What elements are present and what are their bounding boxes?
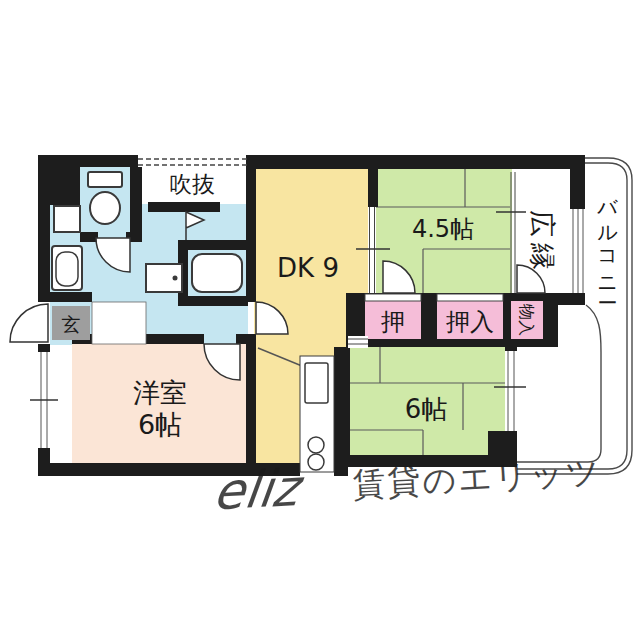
monoire-label: 物入 (517, 303, 536, 336)
balcony-label: バルコニー (596, 185, 620, 304)
watermark-logo: eliz (210, 458, 307, 522)
corner-sink (54, 206, 80, 232)
jp6-window (505, 351, 517, 431)
genkan-label: 玄 (62, 313, 81, 335)
dk-jp6-opening (348, 336, 368, 348)
yoshitsu-label-line1: 洋室 (133, 377, 187, 408)
fukinuke-label: 吹抜 (169, 171, 215, 197)
hiroen-label: 広縁 (527, 210, 558, 276)
toilet-bowl (90, 192, 120, 224)
floorplan-page: 吹抜 DK 9 4.5帖 広縁 バルコニー 押 押入 物入 6帖 洋室 6帖 玄… (0, 0, 640, 640)
toilet-tank (88, 172, 122, 187)
washing-machine (56, 252, 78, 286)
floorplan-svg: 吹抜 DK 9 4.5帖 広縁 バルコニー 押 押入 物入 6帖 洋室 6帖 玄… (0, 0, 640, 640)
oshiire-fusuma (437, 294, 503, 301)
jp6-label: 6帖 (405, 394, 448, 424)
entrance-door (10, 304, 48, 342)
bathtub (192, 254, 242, 292)
kitchen-sink (305, 363, 328, 403)
dk-label: DK 9 (277, 253, 339, 283)
yoshitsu-label-line2: 6帖 (138, 409, 182, 440)
jp45-label: 4.5帖 (412, 215, 474, 243)
oshiire-label: 押入 (446, 308, 494, 336)
entrance-step (92, 302, 146, 344)
oshi-label: 押 (381, 308, 405, 336)
oshi-fusuma (365, 294, 421, 301)
vanity-faucet (173, 276, 178, 281)
